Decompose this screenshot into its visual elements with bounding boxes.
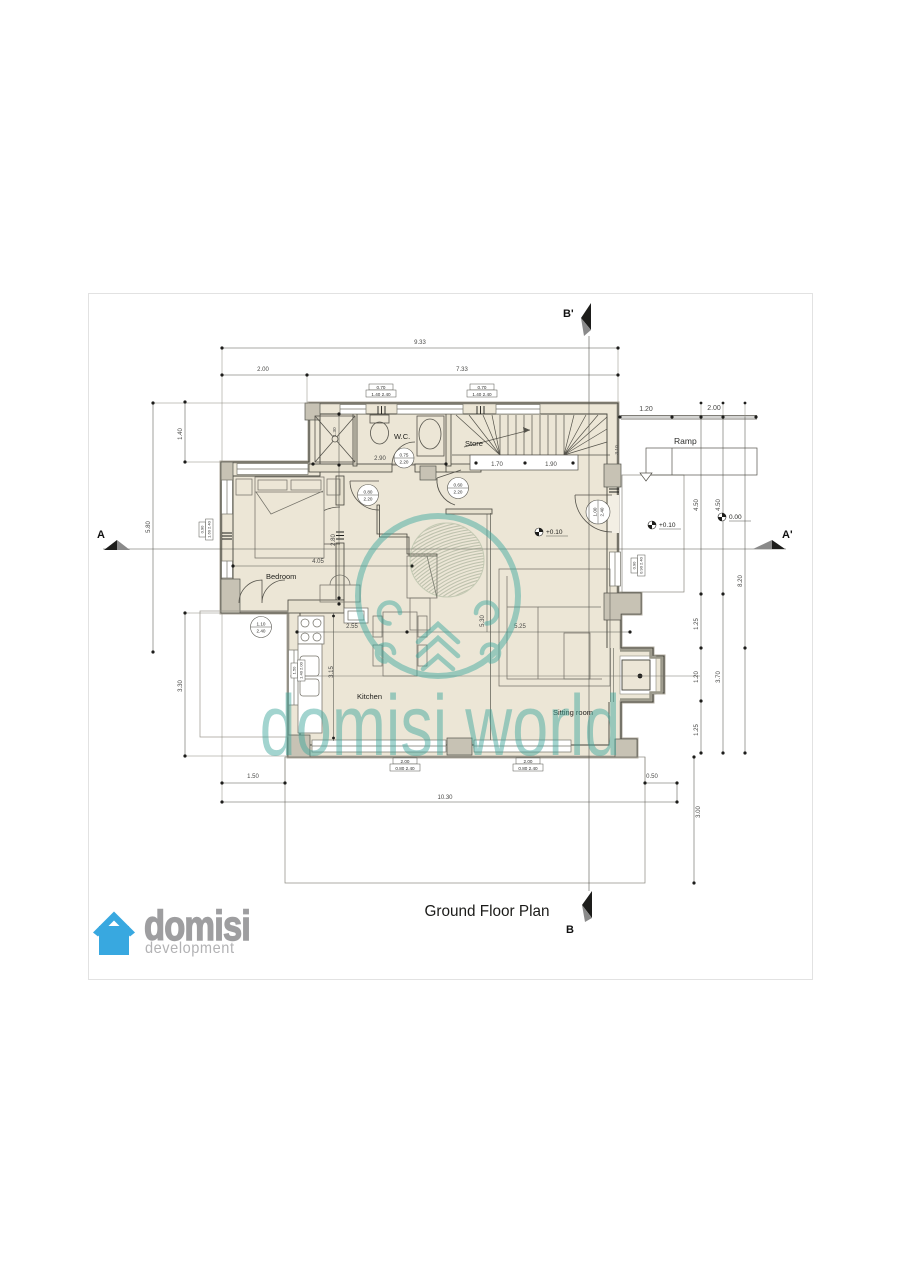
svg-text:1.40 2.40: 1.40 2.40 xyxy=(371,392,391,397)
svg-text:1.00: 1.00 xyxy=(593,507,598,516)
svg-text:1.50: 1.50 xyxy=(247,774,259,780)
svg-text:4.50: 4.50 xyxy=(694,499,700,511)
svg-text:1.40: 1.40 xyxy=(178,428,184,440)
svg-text:1.60 2.40: 1.60 2.40 xyxy=(207,520,212,537)
svg-text:1.25: 1.25 xyxy=(694,724,700,736)
svg-text:2.00: 2.00 xyxy=(257,367,269,373)
svg-text:2.40: 2.40 xyxy=(600,507,605,516)
svg-text:0.70: 0.70 xyxy=(478,385,487,390)
svg-text:2.40: 2.40 xyxy=(257,629,266,634)
svg-text:0.90: 0.90 xyxy=(200,525,205,534)
svg-text:domisi world: domisi world xyxy=(260,678,621,774)
svg-text:0.75: 0.75 xyxy=(400,453,409,458)
svg-text:+0.10: +0.10 xyxy=(659,522,676,529)
svg-text:2.55: 2.55 xyxy=(346,624,358,630)
svg-text:5.80: 5.80 xyxy=(146,521,152,533)
svg-text:7.33: 7.33 xyxy=(456,367,468,373)
svg-text:1.30: 1.30 xyxy=(332,427,338,437)
svg-text:3.15: 3.15 xyxy=(329,666,335,678)
svg-text:1.40 2.00: 1.40 2.00 xyxy=(299,661,304,678)
svg-text:1.10: 1.10 xyxy=(257,622,266,627)
svg-text:0.60: 0.60 xyxy=(454,483,463,488)
svg-text:1.40 2.40: 1.40 2.40 xyxy=(472,392,492,397)
svg-text:2.20: 2.20 xyxy=(364,497,373,502)
svg-text:5.25: 5.25 xyxy=(514,624,526,630)
svg-text:Store: Store xyxy=(465,439,483,448)
svg-text:Bedroom: Bedroom xyxy=(266,572,296,581)
svg-text:B: B xyxy=(566,924,574,936)
svg-text:0.50: 0.50 xyxy=(646,774,658,780)
svg-text:9.33: 9.33 xyxy=(414,340,426,346)
svg-text:+0.10: +0.10 xyxy=(546,529,563,536)
svg-text:2.80: 2.80 xyxy=(331,534,337,546)
svg-text:0.00: 0.00 xyxy=(729,514,742,521)
svg-text:1.50: 1.50 xyxy=(292,666,297,675)
svg-text:3.00: 3.00 xyxy=(696,806,702,818)
svg-text:1.20: 1.20 xyxy=(639,406,653,413)
svg-text:2.90: 2.90 xyxy=(374,456,386,462)
svg-text:1.70: 1.70 xyxy=(491,462,503,468)
svg-text:W.C.: W.C. xyxy=(394,432,410,441)
svg-text:2.20: 2.20 xyxy=(454,490,463,495)
svg-text:A: A xyxy=(97,529,105,541)
svg-text:3.10: 3.10 xyxy=(614,445,620,455)
svg-text:4.50: 4.50 xyxy=(716,499,722,511)
svg-text:0.80: 0.80 xyxy=(364,490,373,495)
svg-text:Ramp: Ramp xyxy=(674,436,697,446)
svg-text:3.30: 3.30 xyxy=(178,680,184,692)
svg-text:3.70: 3.70 xyxy=(716,671,722,683)
svg-text:1.90: 1.90 xyxy=(545,462,557,468)
svg-text:2.00: 2.00 xyxy=(707,405,721,412)
svg-text:2.20: 2.20 xyxy=(400,460,409,465)
svg-text:0.70: 0.70 xyxy=(377,385,386,390)
svg-text:B': B' xyxy=(563,308,574,320)
svg-text:10.30: 10.30 xyxy=(437,795,453,801)
svg-text:1.20: 1.20 xyxy=(694,671,700,683)
svg-text:0.90: 0.90 xyxy=(632,561,637,570)
svg-text:development: development xyxy=(145,940,235,958)
svg-text:Ground Floor Plan: Ground Floor Plan xyxy=(425,903,550,920)
svg-text:8.20: 8.20 xyxy=(738,575,744,587)
svg-text:4.05: 4.05 xyxy=(312,559,324,565)
svg-text:1.25: 1.25 xyxy=(694,618,700,630)
svg-text:0.90 2.40: 0.90 2.40 xyxy=(639,556,644,573)
svg-text:A': A' xyxy=(782,529,793,541)
